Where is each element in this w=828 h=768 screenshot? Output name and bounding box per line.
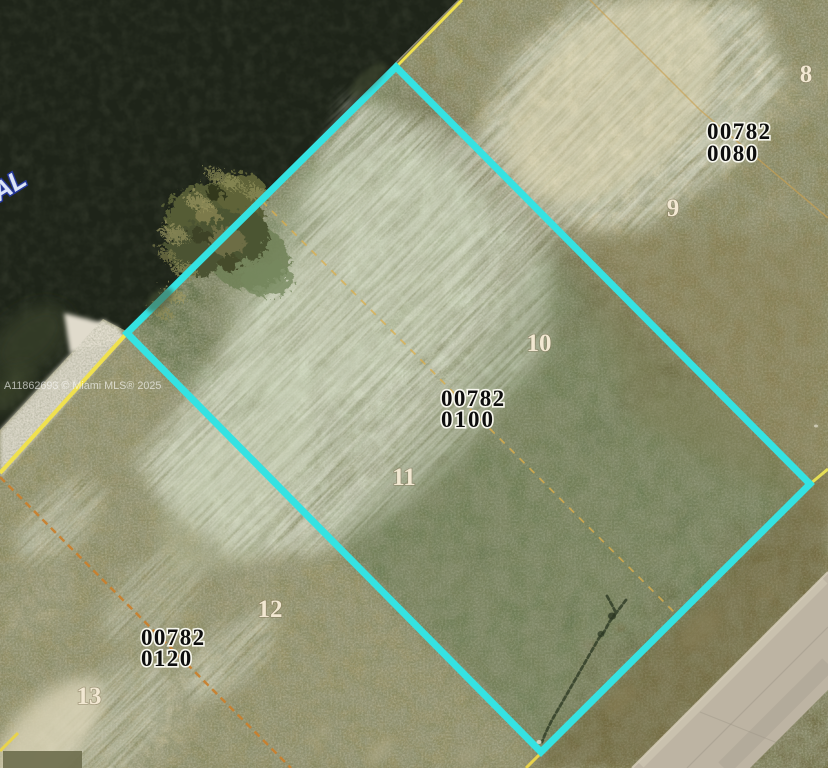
svg-text:13: 13 <box>77 683 102 710</box>
svg-text:9: 9 <box>667 195 680 222</box>
svg-text:11: 11 <box>392 464 416 491</box>
svg-text:0100: 0100 <box>441 407 495 432</box>
svg-text:A11862693 © Miami MLS® 2025: A11862693 © Miami MLS® 2025 <box>4 380 161 392</box>
svg-text:10: 10 <box>527 330 552 357</box>
svg-text:12: 12 <box>258 596 283 623</box>
svg-text:0080: 0080 <box>707 141 759 166</box>
svg-text:8: 8 <box>800 61 813 88</box>
svg-text:0120: 0120 <box>141 646 193 671</box>
